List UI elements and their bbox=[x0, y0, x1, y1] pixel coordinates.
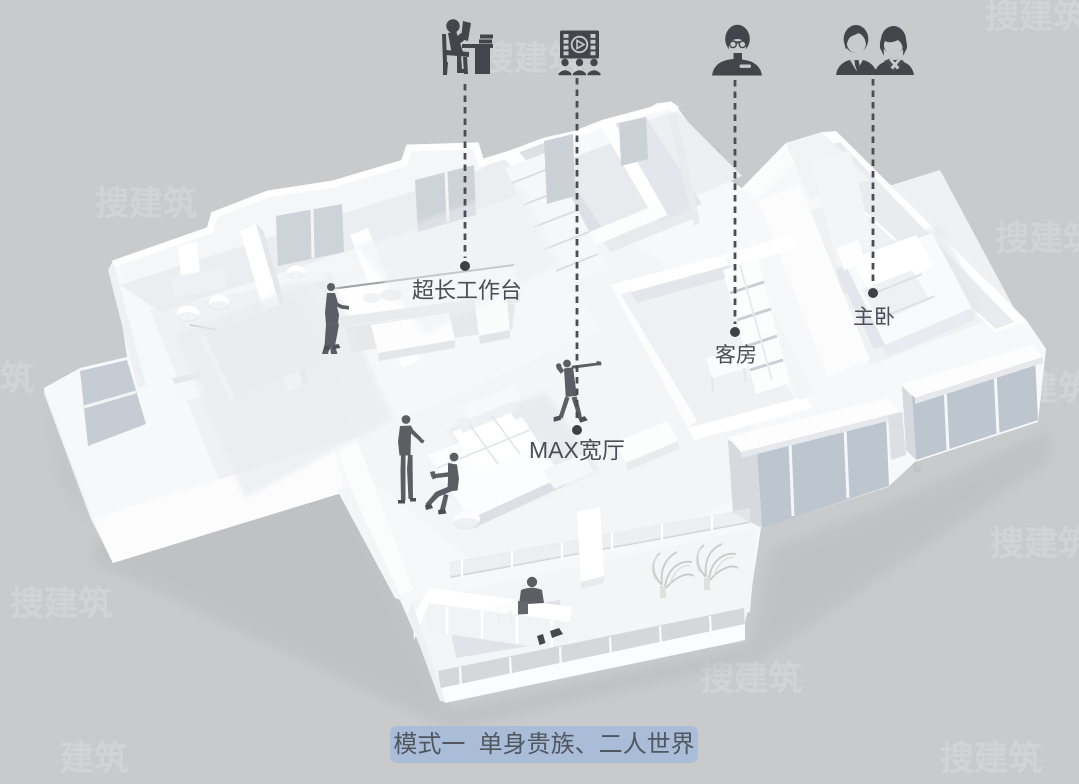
svg-text:搜建筑: 搜建筑 bbox=[985, 0, 1079, 36]
svg-text:超长工作台: 超长工作台 bbox=[412, 278, 522, 303]
svg-text:搜建筑: 搜建筑 bbox=[95, 185, 197, 223]
svg-text:客房: 客房 bbox=[715, 344, 757, 367]
svg-text:MAX宽厅: MAX宽厅 bbox=[529, 437, 625, 463]
svg-text:搜建筑: 搜建筑 bbox=[990, 525, 1079, 563]
svg-text:搜建筑: 搜建筑 bbox=[10, 585, 112, 623]
svg-text:主卧: 主卧 bbox=[853, 306, 895, 329]
svg-text:筑: 筑 bbox=[0, 360, 34, 398]
svg-text:建筑: 建筑 bbox=[60, 740, 128, 778]
svg-text:模式一 单身贵族、二人世界: 模式一 单身贵族、二人世界 bbox=[393, 731, 694, 758]
svg-text:搜建筑: 搜建筑 bbox=[995, 220, 1079, 258]
svg-text:搜建筑: 搜建筑 bbox=[940, 740, 1042, 778]
